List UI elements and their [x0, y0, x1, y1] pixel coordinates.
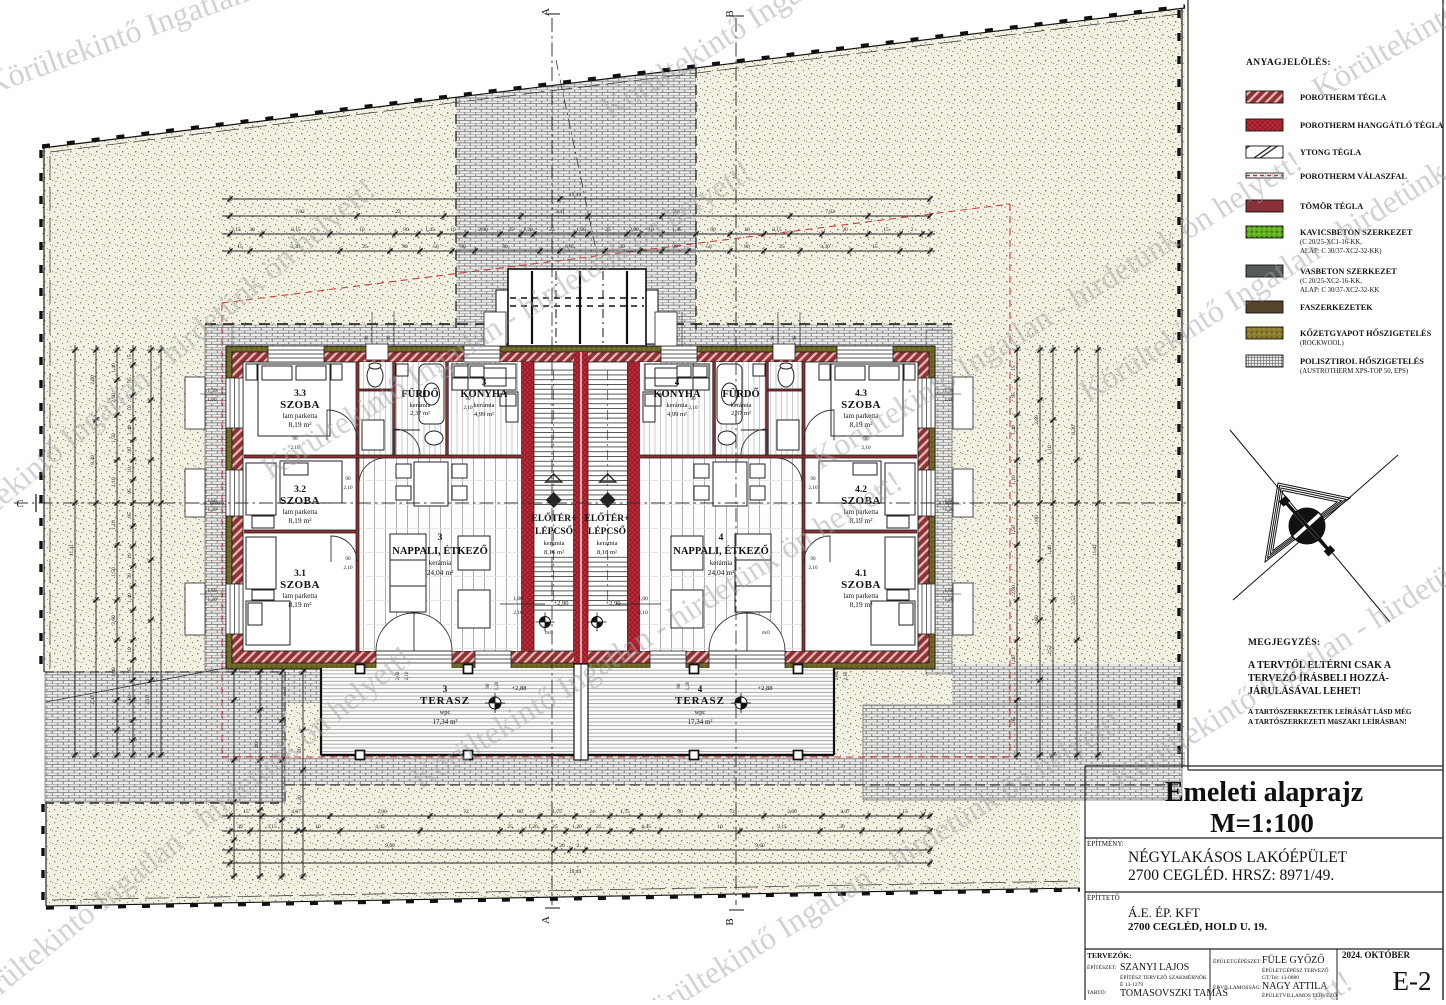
svg-text:2,52: 2,52 — [1071, 595, 1077, 605]
svg-text:17,34 m²: 17,34 m² — [432, 718, 457, 726]
svg-text:11,41: 11,41 — [69, 544, 75, 556]
svg-text:1,10: 1,10 — [1047, 445, 1053, 455]
svg-text:TERASZ: TERASZ — [675, 695, 725, 707]
svg-text:E-2: E-2 — [1393, 966, 1432, 996]
svg-text:A TARTÓSZERKEZETI MűSZAKI LEÍR: A TARTÓSZERKEZETI MűSZAKI LEÍRÁSBAN! — [1248, 716, 1407, 726]
svg-text:90: 90 — [810, 556, 816, 562]
svg-text:A: A — [540, 8, 552, 16]
svg-text:1,50: 1,50 — [111, 433, 117, 443]
svg-text:2: 2 — [577, 843, 580, 849]
svg-text:1,40: 1,40 — [1011, 425, 1017, 435]
svg-text:15: 15 — [902, 809, 908, 815]
svg-text:15: 15 — [243, 809, 249, 815]
svg-text:3,15: 3,15 — [772, 227, 782, 233]
svg-text:10: 10 — [127, 553, 133, 559]
svg-text:1,40: 1,40 — [127, 593, 133, 603]
svg-text:3: 3 — [482, 377, 487, 387]
svg-text:4: 4 — [698, 684, 703, 694]
svg-text:10: 10 — [450, 227, 456, 233]
svg-text:1,20: 1,20 — [207, 397, 216, 403]
svg-text:19,49: 19,49 — [569, 869, 581, 875]
svg-text:95: 95 — [127, 488, 133, 494]
svg-text:90: 90 — [387, 335, 392, 341]
svg-text:wpc: wpc — [440, 709, 451, 716]
svg-text:1,40: 1,40 — [111, 363, 117, 373]
svg-text:8,19 m²: 8,19 m² — [288, 516, 312, 525]
svg-text:2,10: 2,10 — [808, 565, 817, 571]
svg-text:(C 20/25-XC2-16-KK,: (C 20/25-XC2-16-KK, — [1300, 278, 1362, 285]
svg-text:lam parketta: lam parketta — [283, 508, 319, 516]
svg-text:90: 90 — [402, 244, 408, 250]
svg-text:FÜRDŐ: FÜRDŐ — [722, 387, 759, 400]
svg-text:90: 90 — [810, 476, 816, 482]
svg-text:1,50: 1,50 — [944, 498, 953, 504]
svg-text:1,20: 1,20 — [686, 681, 691, 690]
svg-text:15: 15 — [237, 244, 243, 250]
svg-text:8,19 m²: 8,19 m² — [288, 600, 312, 609]
svg-text:15: 15 — [127, 354, 133, 360]
svg-text:2,10: 2,10 — [808, 485, 817, 491]
svg-text:TERVEZŐK:: TERVEZŐK: — [1087, 950, 1132, 960]
svg-text:1,20: 1,20 — [495, 681, 500, 690]
svg-text:É 13-1279: É 13-1279 — [1120, 980, 1143, 988]
svg-text:9,60: 9,60 — [755, 843, 765, 849]
svg-text:2,37 m²: 2,37 m² — [731, 410, 751, 417]
svg-text:10: 10 — [315, 824, 321, 830]
svg-text:POLISZTIROL HŐSZIGETELÉS: POLISZTIROL HŐSZIGETELÉS — [1300, 356, 1424, 366]
svg-text:2,60: 2,60 — [1034, 615, 1040, 625]
svg-text:wpc: wpc — [695, 709, 706, 716]
svg-text:ELŐTÉR+: ELŐTÉR+ — [584, 512, 629, 524]
svg-text:3,15: 3,15 — [267, 824, 277, 830]
svg-text:1,40: 1,40 — [111, 667, 117, 677]
svg-text:1,45: 1,45 — [425, 227, 435, 233]
svg-text:90: 90 — [744, 244, 750, 250]
svg-text:25: 25 — [507, 824, 513, 830]
svg-text:50: 50 — [706, 244, 712, 250]
svg-text:2,37 m²: 2,37 m² — [410, 410, 430, 417]
svg-text:2: 2 — [911, 227, 914, 233]
svg-text:4,99 m²: 4,99 m² — [667, 411, 687, 418]
svg-text:1,20: 1,20 — [944, 597, 953, 603]
svg-text:90: 90 — [677, 683, 682, 689]
svg-text:15: 15 — [1011, 365, 1017, 371]
svg-text:8,19 m²: 8,19 m² — [849, 600, 873, 609]
svg-text:A TARTÓSZERKEZETEK LEÍRÁSÁT LÁ: A TARTÓSZERKEZETEK LEÍRÁSÁT LÁSD MÉG — [1248, 706, 1412, 716]
svg-text:ÉPÜLETGÉPÉSZET:: ÉPÜLETGÉPÉSZET: — [1213, 957, 1262, 965]
svg-text:90: 90 — [460, 244, 466, 250]
svg-text:3.2: 3.2 — [294, 485, 306, 495]
svg-text:ÉPÍTÉSZ TERVEZŐ SZAKMÉRNÖK: ÉPÍTÉSZ TERVEZŐ SZAKMÉRNÖK — [1120, 973, 1207, 981]
svg-text:1,00: 1,00 — [513, 596, 523, 602]
svg-text:24,04 m²: 24,04 m² — [427, 568, 455, 577]
svg-text:SZOBA: SZOBA — [280, 495, 320, 507]
svg-text:17,34 m²: 17,34 m² — [687, 718, 712, 726]
svg-text:2: 2 — [924, 809, 927, 815]
svg-text:4,45: 4,45 — [375, 824, 385, 830]
svg-text:kerámia: kerámia — [544, 540, 565, 547]
svg-text:10: 10 — [744, 227, 750, 233]
svg-text:10: 10 — [127, 467, 133, 473]
svg-text:1,20: 1,20 — [523, 227, 533, 233]
svg-text:30: 30 — [502, 244, 508, 250]
svg-text:NÉGYLAKÁSOS LAKÓÉPÜLET: NÉGYLAKÁSOS LAKÓÉPÜLET — [1128, 849, 1348, 866]
svg-text:2,60: 2,60 — [1034, 415, 1040, 425]
svg-text:2,10: 2,10 — [844, 671, 849, 680]
svg-text:2024. OKTÓBER: 2024. OKTÓBER — [1342, 950, 1411, 960]
svg-text:1,40: 1,40 — [1011, 655, 1017, 665]
svg-text:9,60: 9,60 — [385, 843, 395, 849]
svg-text:10: 10 — [359, 227, 365, 233]
svg-text:2,10: 2,10 — [463, 405, 472, 411]
svg-text:A: A — [540, 916, 552, 924]
svg-text:1,75: 1,75 — [552, 809, 562, 815]
svg-text:kerámia: kerámia — [731, 402, 752, 409]
svg-text:4.1: 4.1 — [855, 569, 867, 579]
svg-text:90: 90 — [403, 227, 409, 233]
svg-text:72: 72 — [463, 809, 469, 815]
svg-text:1,10: 1,10 — [111, 520, 117, 530]
svg-text:15: 15 — [883, 227, 889, 233]
svg-text:NAPPALI, ÉTKEZŐ: NAPPALI, ÉTKEZŐ — [392, 545, 487, 557]
svg-text:8,16 m²: 8,16 m² — [597, 549, 617, 556]
svg-text:8,30: 8,30 — [1071, 425, 1077, 435]
svg-text:ELŐTÉR+: ELŐTÉR+ — [531, 512, 576, 524]
svg-text:+2,88: +2,88 — [757, 685, 772, 692]
svg-text:1,50: 1,50 — [207, 588, 216, 594]
svg-text:LÉPCSŐ: LÉPCSŐ — [535, 525, 573, 537]
svg-text:1,20: 1,20 — [944, 507, 953, 513]
svg-text:2,10: 2,10 — [513, 610, 523, 616]
svg-text:19,49: 19,49 — [569, 192, 581, 198]
svg-text:FÜLE GYŐZŐ: FÜLE GYŐZŐ — [1262, 954, 1325, 966]
svg-text:25: 25 — [779, 244, 785, 250]
svg-text:SZOBA: SZOBA — [280, 579, 320, 591]
svg-text:2700 CEGLÉD, HOLD U. 19.: 2700 CEGLÉD, HOLD U. 19. — [1128, 921, 1267, 933]
svg-text:m/0: m/0 — [762, 631, 770, 636]
svg-text:4,07: 4,07 — [291, 809, 301, 815]
svg-text:3: 3 — [443, 684, 448, 694]
svg-text:95: 95 — [1011, 392, 1017, 398]
svg-text:1,10: 1,10 — [111, 477, 117, 487]
svg-text:7,62: 7,62 — [825, 209, 835, 215]
svg-text:39: 39 — [237, 824, 243, 830]
svg-text:8,16 m²: 8,16 m² — [544, 549, 564, 556]
svg-text:FASZERKEZETEK: FASZERKEZETEK — [1300, 303, 1373, 312]
svg-text:M=1:100: M=1:100 — [1210, 808, 1314, 838]
svg-text:30: 30 — [249, 227, 255, 233]
svg-text:3.3: 3.3 — [294, 389, 306, 399]
svg-text:ÉPÍTMÉNY:: ÉPÍTMÉNY: — [1087, 840, 1124, 848]
svg-text:3,41: 3,41 — [555, 209, 565, 215]
svg-text:lam parketta: lam parketta — [844, 592, 880, 600]
svg-text:15: 15 — [872, 244, 878, 250]
svg-text:2,00: 2,00 — [478, 227, 488, 233]
svg-text:2700 CEGLÉD. HRSZ: 8971/49.: 2700 CEGLÉD. HRSZ: 8971/49. — [1128, 867, 1334, 884]
svg-text:KŐZETGYAPOT HŐSZIGETELÉS: KŐZETGYAPOT HŐSZIGETELÉS — [1300, 328, 1432, 338]
svg-text:2,00: 2,00 — [787, 809, 797, 815]
svg-text:1,50: 1,50 — [1011, 525, 1017, 535]
svg-text:TERASZ: TERASZ — [420, 695, 470, 707]
svg-text:90: 90 — [517, 809, 523, 815]
svg-text:2,43: 2,43 — [90, 695, 96, 705]
svg-text:90: 90 — [710, 227, 716, 233]
svg-text:7,62: 7,62 — [295, 209, 305, 215]
svg-text:1,20: 1,20 — [297, 795, 303, 805]
svg-text:kerámia: kerámia — [474, 402, 495, 409]
svg-text:95: 95 — [127, 667, 133, 673]
svg-text:2,00: 2,00 — [377, 809, 387, 815]
svg-text:kerámia: kerámia — [410, 402, 431, 409]
svg-text:3,15: 3,15 — [777, 824, 787, 830]
svg-text:Á.E. ÉP. KFT: Á.E. ÉP. KFT — [1128, 905, 1200, 920]
svg-text:lam parketta: lam parketta — [283, 592, 319, 600]
svg-text:B: B — [724, 918, 736, 925]
svg-text:95: 95 — [127, 512, 133, 518]
svg-text:1,40: 1,40 — [127, 425, 133, 435]
svg-text:4,45: 4,45 — [641, 824, 651, 830]
svg-text:90: 90 — [690, 396, 696, 402]
svg-text:3.1: 3.1 — [294, 569, 306, 579]
svg-text:TARTÓ:: TARTÓ: — [1087, 988, 1107, 996]
svg-text:90: 90 — [672, 244, 678, 250]
svg-text:90: 90 — [771, 335, 776, 341]
svg-text:SZOBA: SZOBA — [841, 579, 881, 591]
svg-text:1,20: 1,20 — [576, 227, 586, 233]
svg-text:3,30: 3,30 — [820, 244, 830, 250]
svg-text:ÉP.VILLAMOSSÁG:: ÉP.VILLAMOSSÁG: — [1213, 983, 1262, 991]
svg-text:1,75: 1,75 — [620, 809, 630, 815]
svg-text:25: 25 — [552, 824, 558, 830]
svg-text:1,50: 1,50 — [944, 588, 953, 594]
svg-text:2,60: 2,60 — [1011, 585, 1017, 595]
svg-text:LÉPCSŐ: LÉPCSŐ — [588, 525, 626, 537]
svg-text:90: 90 — [345, 476, 351, 482]
svg-text:1,00: 1,00 — [1034, 515, 1040, 525]
svg-text:ÉPÍTTETŐ: ÉPÍTTETŐ — [1087, 894, 1120, 902]
svg-text:8,30: 8,30 — [90, 455, 96, 465]
svg-text:90: 90 — [486, 683, 491, 689]
svg-text:(AUSTROTHERM XPS-TOP 50, EPS): (AUSTROTHERM XPS-TOP 50, EPS) — [1300, 368, 1408, 375]
svg-text:kerámia: kerámia — [597, 540, 618, 547]
svg-text:1,00: 1,00 — [638, 596, 648, 602]
svg-text:22: 22 — [395, 209, 401, 215]
svg-text:4,07: 4,07 — [840, 809, 850, 815]
svg-text:+2,90: +2,90 — [553, 600, 568, 607]
svg-text:SZANYI LAJOS: SZANYI LAJOS — [1120, 962, 1189, 973]
svg-text:25: 25 — [596, 824, 602, 830]
svg-text:2,10: 2,10 — [343, 565, 352, 571]
svg-text:90: 90 — [365, 335, 370, 341]
svg-text:2,60: 2,60 — [90, 375, 96, 385]
svg-text:95: 95 — [1011, 717, 1017, 723]
svg-text:(ROCKWOOL): (ROCKWOOL) — [1300, 340, 1344, 347]
svg-text:20: 20 — [559, 843, 565, 849]
svg-text:2,00: 2,00 — [835, 671, 840, 680]
svg-text:Emeleti alaprajz: Emeleti alaprajz — [1165, 777, 1363, 808]
svg-text:1,50: 1,50 — [207, 388, 216, 394]
svg-text:1,40: 1,40 — [1047, 545, 1053, 555]
svg-text:72: 72 — [729, 809, 735, 815]
svg-text:3: 3 — [438, 533, 443, 543]
svg-text:1,20: 1,20 — [207, 507, 216, 513]
svg-text:30: 30 — [127, 447, 133, 453]
svg-text:10: 10 — [717, 824, 723, 830]
svg-text:4: 4 — [675, 377, 680, 387]
svg-text:6,05: 6,05 — [565, 244, 575, 250]
svg-text:4: 4 — [719, 533, 724, 543]
svg-text:1,20: 1,20 — [207, 597, 216, 603]
svg-text:1,10: 1,10 — [1011, 475, 1017, 485]
svg-text:2,10: 2,10 — [688, 405, 697, 411]
svg-text:90: 90 — [345, 556, 351, 562]
svg-text:kerámia: kerámia — [667, 402, 688, 409]
svg-text:25: 25 — [508, 227, 514, 233]
svg-text:30: 30 — [127, 573, 133, 579]
svg-text:YTONG TÉGLA: YTONG TÉGLA — [1300, 147, 1361, 157]
svg-text:2,10: 2,10 — [145, 695, 151, 705]
svg-text:4.3: 4.3 — [855, 389, 867, 399]
svg-text:1,20: 1,20 — [572, 824, 582, 830]
svg-text:25: 25 — [362, 244, 368, 250]
svg-text:kerámia: kerámia — [429, 559, 452, 567]
svg-text:2,52: 2,52 — [1047, 645, 1053, 655]
svg-text:24: 24 — [589, 809, 595, 815]
svg-text:2,10: 2,10 — [127, 695, 133, 705]
svg-text:ALAP: C 30/37-XC2-32-KK: ALAP: C 30/37-XC2-32-KK — [1300, 287, 1379, 294]
svg-text:SZOBA: SZOBA — [280, 399, 320, 411]
svg-text:30: 30 — [839, 824, 845, 830]
svg-text:POROTHERM HANGGÁTLÓ TÉGLA: POROTHERM HANGGÁTLÓ TÉGLA — [1300, 120, 1443, 130]
svg-text:11,41: 11,41 — [1092, 544, 1098, 556]
svg-text:90: 90 — [677, 809, 683, 815]
svg-text:2,60: 2,60 — [111, 615, 117, 625]
svg-text:1,50: 1,50 — [207, 498, 216, 504]
svg-text:4,99 m²: 4,99 m² — [474, 411, 494, 418]
svg-text:ÉPÜLETGÉPÉSZ TERVEZŐ: ÉPÜLETGÉPÉSZ TERVEZŐ — [1262, 966, 1329, 974]
svg-text:2,15: 2,15 — [231, 227, 241, 233]
svg-text:+2,90: +2,90 — [605, 600, 620, 607]
svg-text:90: 90 — [793, 335, 798, 341]
svg-text:90: 90 — [465, 396, 471, 402]
svg-text:ÉPÍTÉSZET:: ÉPÍTÉSZET: — [1087, 963, 1117, 971]
svg-text:TOMASOVSZKI TAMÁS: TOMASOVSZKI TAMÁS — [1120, 987, 1228, 999]
svg-text:1,20: 1,20 — [528, 824, 538, 830]
svg-text:20: 20 — [254, 742, 260, 748]
svg-text:30: 30 — [842, 227, 848, 233]
svg-text:2,10: 2,10 — [343, 485, 352, 491]
svg-text:1,50: 1,50 — [111, 567, 117, 577]
svg-text:10: 10 — [127, 647, 133, 653]
svg-text:50: 50 — [433, 244, 439, 250]
